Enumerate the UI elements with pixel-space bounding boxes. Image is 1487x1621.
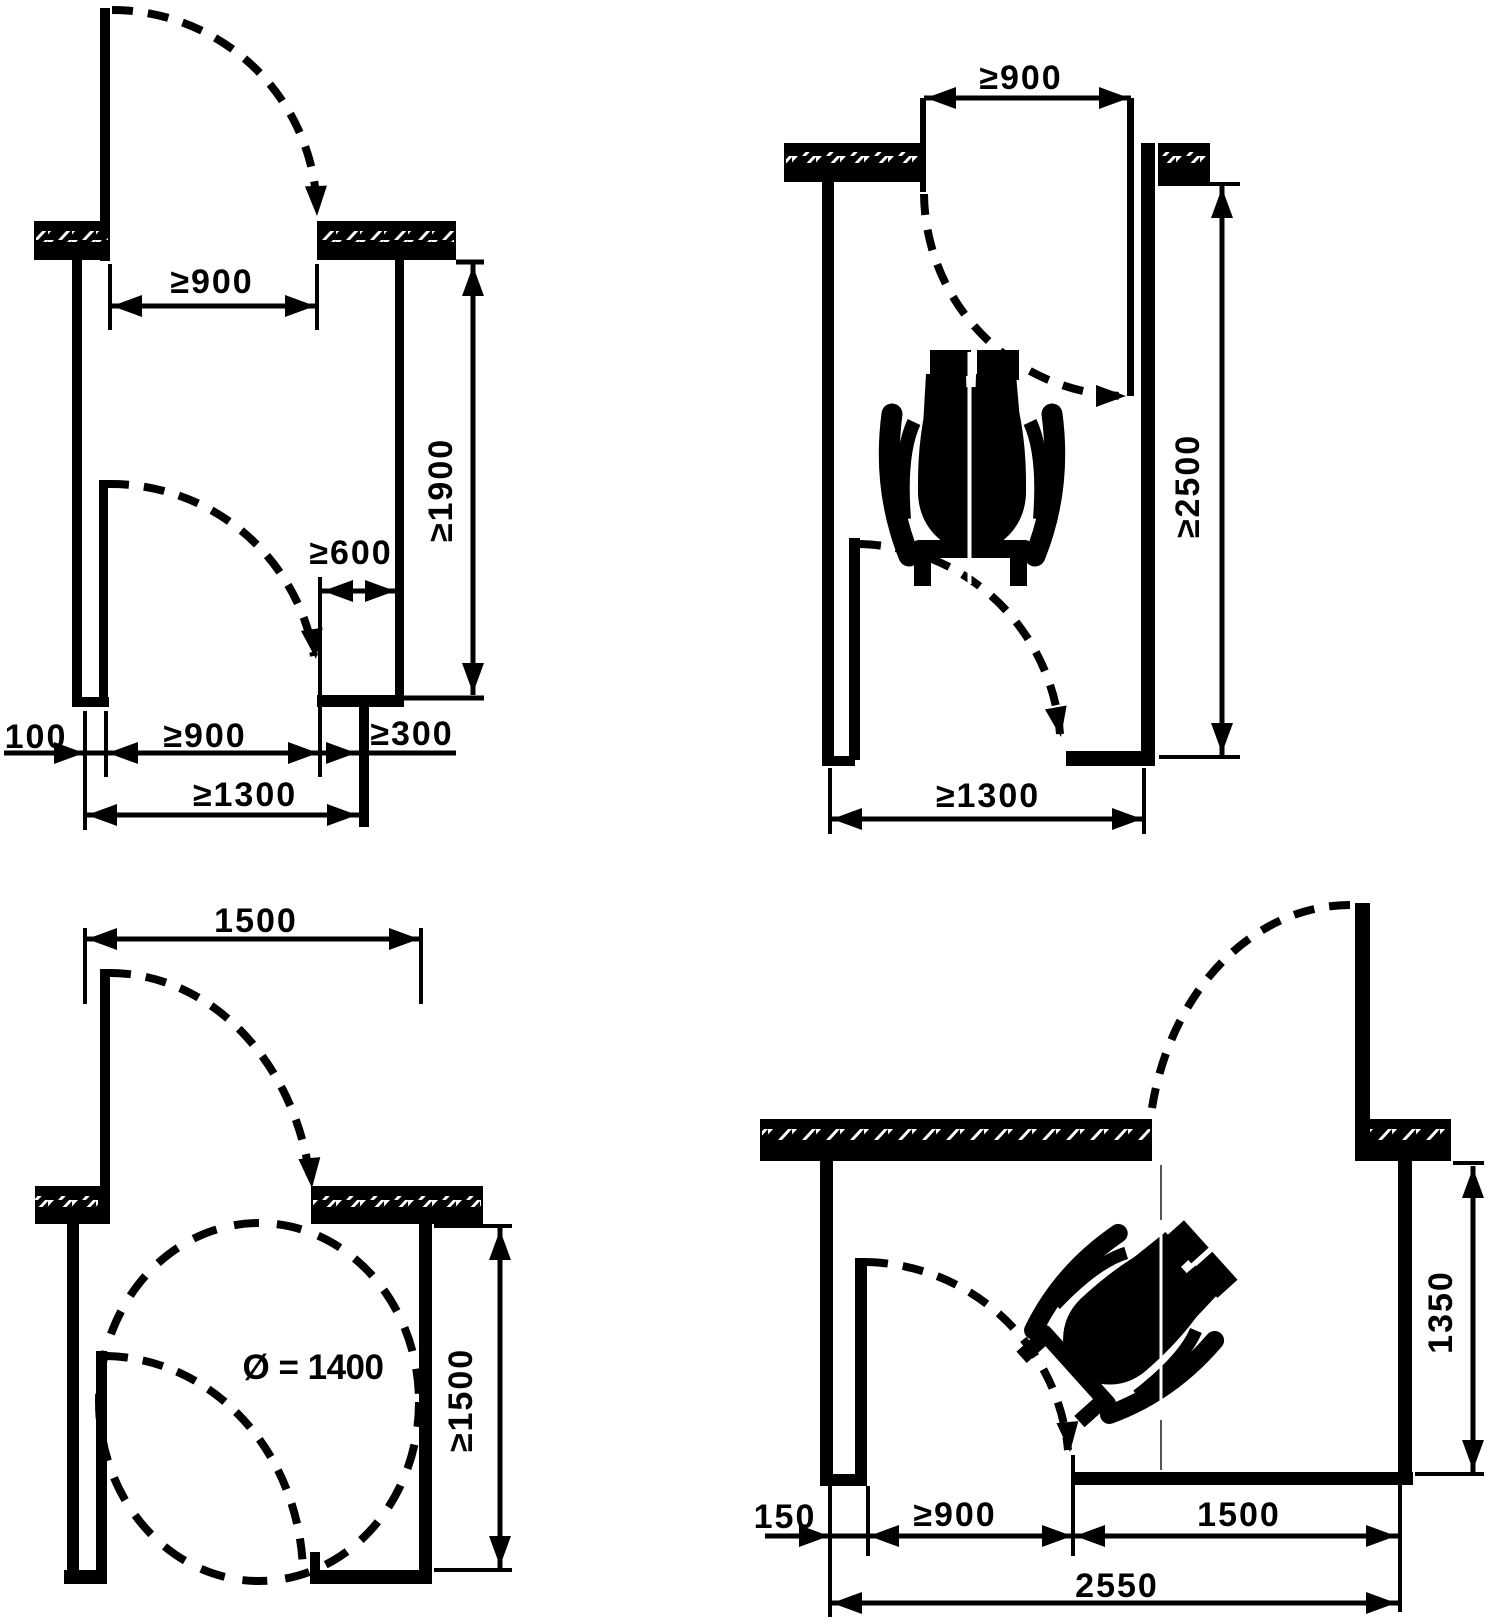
svg-text:≥2500: ≥2500 [1169,434,1207,538]
svg-text:1500: 1500 [1197,1496,1281,1534]
svg-text:2550: 2550 [1075,1567,1159,1605]
svg-text:≥300: ≥300 [370,715,453,753]
svg-text:≥1300: ≥1300 [936,777,1040,815]
svg-text:≥900: ≥900 [913,1496,996,1534]
svg-text:≥900: ≥900 [163,717,246,755]
svg-text:1500: 1500 [214,902,298,940]
svg-text:150: 150 [754,1498,817,1536]
svg-text:≥1900: ≥1900 [422,438,460,542]
svg-text:1350: 1350 [1422,1270,1460,1354]
svg-text:≥600: ≥600 [309,534,392,572]
svg-text:≥1500: ≥1500 [442,1348,480,1452]
svg-text:≥900: ≥900 [979,59,1062,97]
svg-text:100: 100 [5,718,68,756]
svg-text:≥900: ≥900 [170,263,253,301]
svg-text:≥1300: ≥1300 [193,776,297,814]
svg-text:Ø = 1400: Ø = 1400 [243,1348,384,1387]
